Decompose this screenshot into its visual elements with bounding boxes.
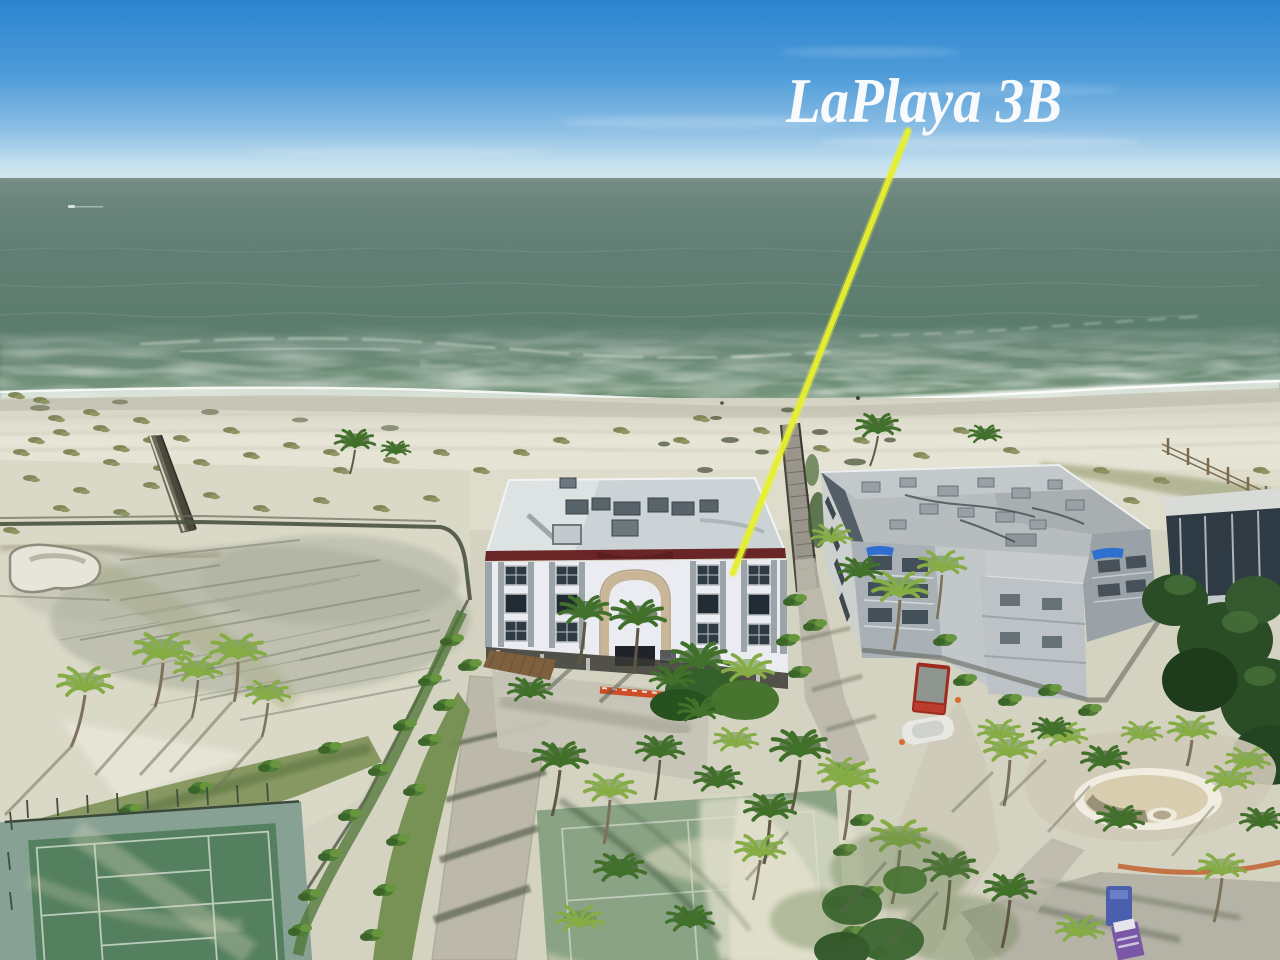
svg-text:LaPlaya 3B: LaPlaya 3B xyxy=(785,66,1062,136)
